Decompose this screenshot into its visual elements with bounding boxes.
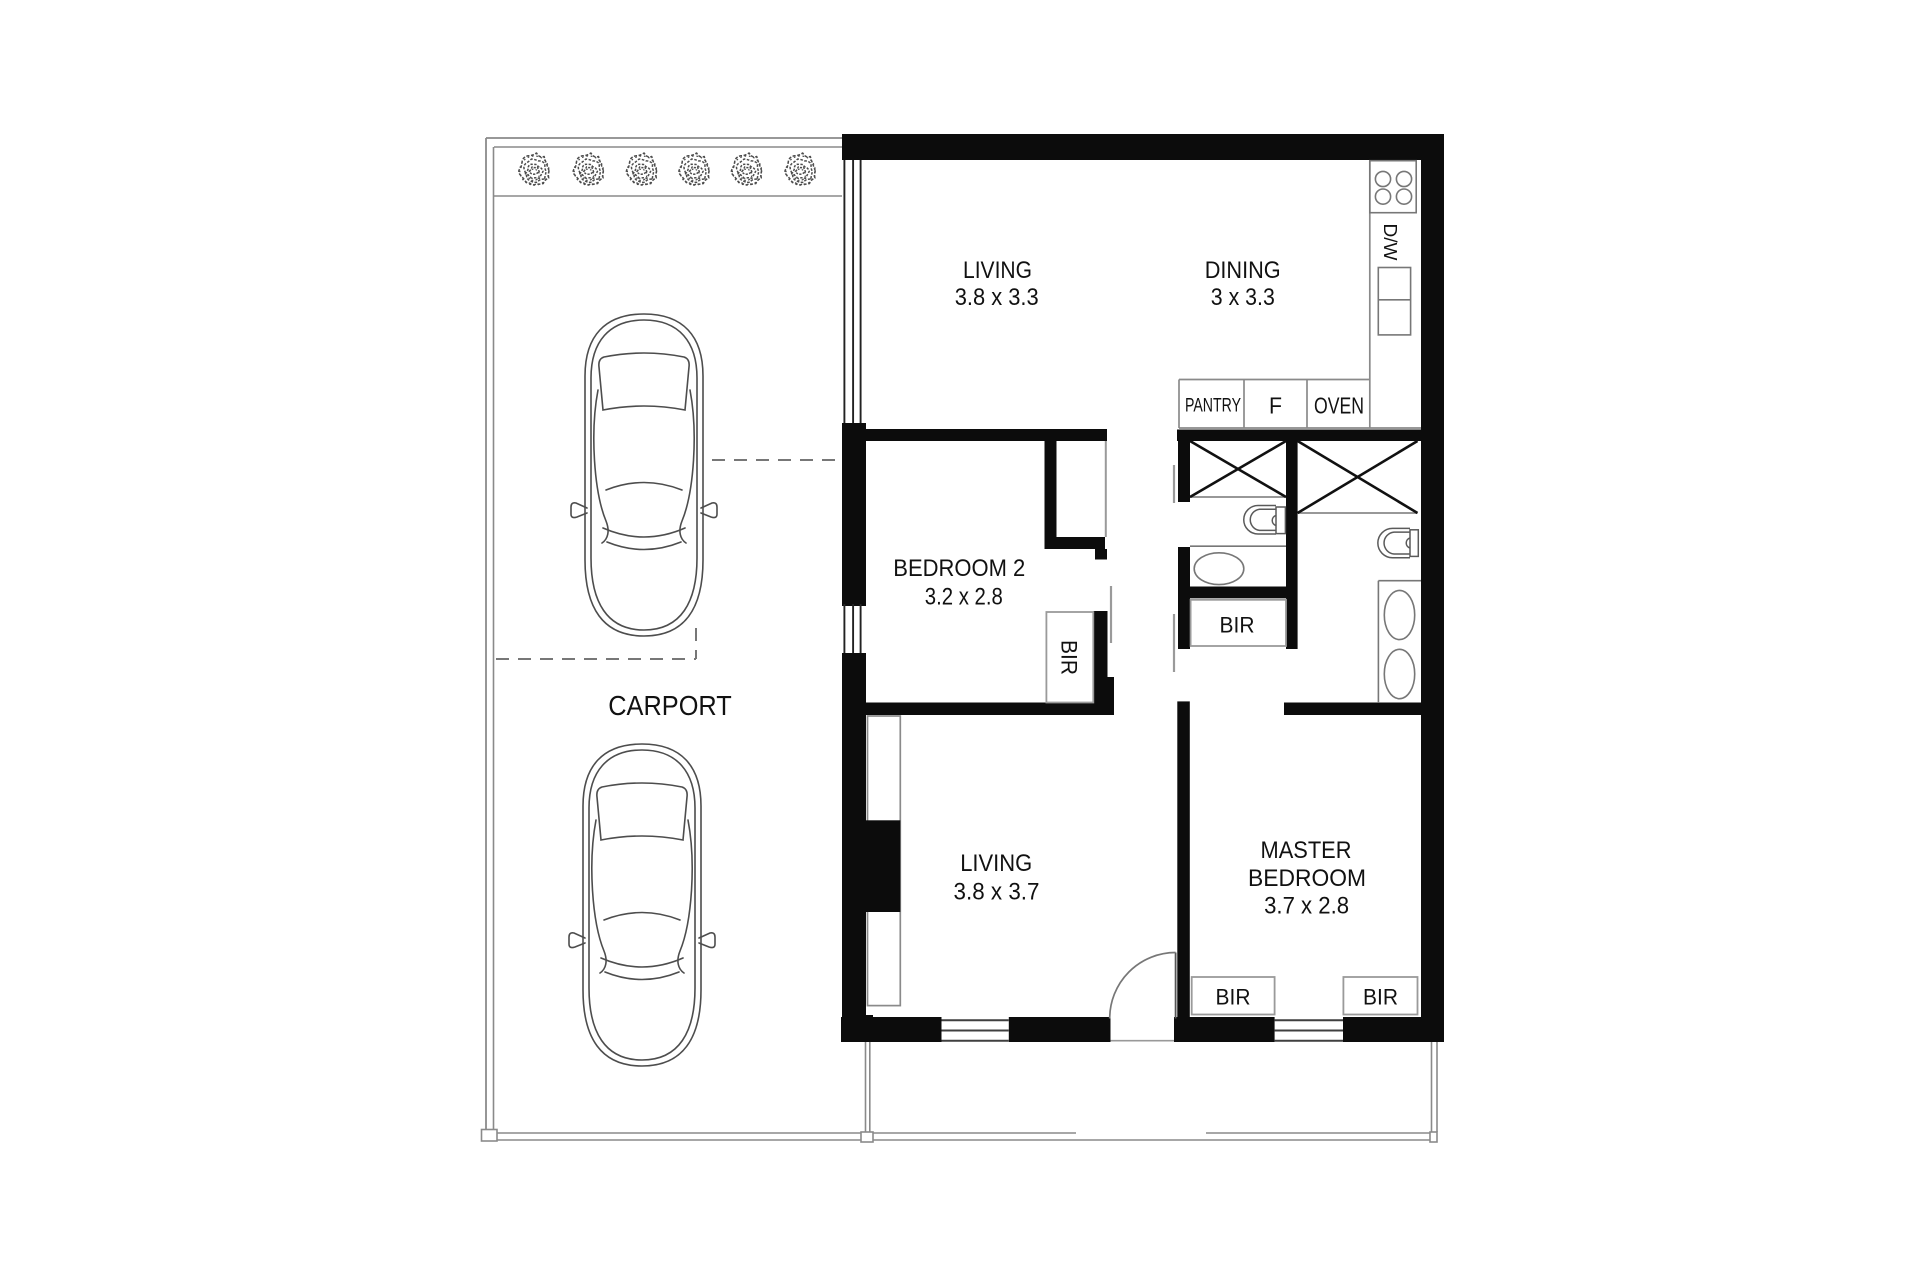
svg-text:BIR: BIR <box>1216 985 1251 1010</box>
svg-text:3.8 x 3.7: 3.8 x 3.7 <box>954 879 1040 906</box>
svg-text:F: F <box>1269 393 1282 419</box>
svg-text:BEDROOM: BEDROOM <box>1248 865 1366 892</box>
svg-text:PANTRY: PANTRY <box>1185 396 1241 417</box>
svg-text:3 x 3.3: 3 x 3.3 <box>1211 284 1275 311</box>
svg-text:MASTER: MASTER <box>1261 837 1352 864</box>
svg-text:BIR: BIR <box>1220 613 1255 638</box>
svg-text:OVEN: OVEN <box>1314 393 1364 419</box>
svg-text:CARPORT: CARPORT <box>608 690 732 721</box>
svg-text:BIR: BIR <box>1057 640 1082 675</box>
svg-text:LIVING: LIVING <box>960 850 1032 877</box>
svg-text:DINING: DINING <box>1205 257 1281 284</box>
svg-text:LIVING: LIVING <box>963 257 1032 284</box>
svg-text:3.8 x 3.3: 3.8 x 3.3 <box>955 284 1039 311</box>
svg-text:D/W: D/W <box>1380 224 1401 262</box>
svg-text:BIR: BIR <box>1363 985 1398 1010</box>
svg-text:BEDROOM 2: BEDROOM 2 <box>893 555 1025 582</box>
svg-text:3.7 x 2.8: 3.7 x 2.8 <box>1264 892 1349 919</box>
svg-text:3.2 x 2.8: 3.2 x 2.8 <box>925 583 1003 610</box>
